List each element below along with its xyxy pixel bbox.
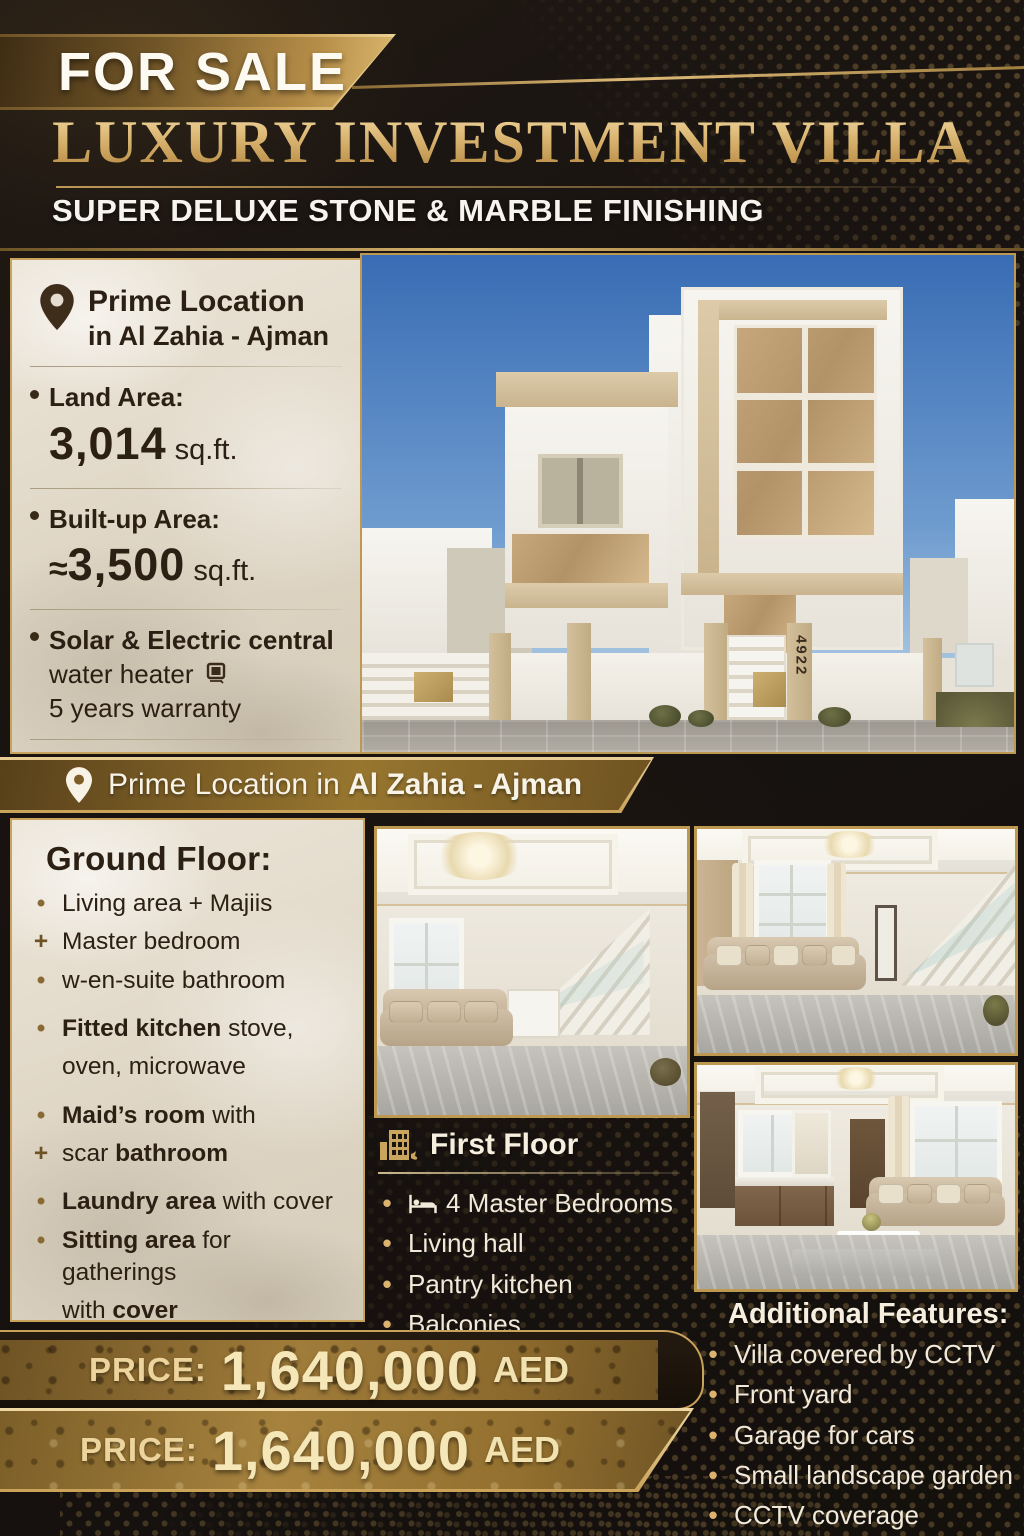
- bullet-marker: •: [32, 965, 50, 997]
- land-area-item: Land Area: 3,014 sq.ft.: [30, 381, 342, 473]
- price-currency: AED: [493, 1349, 569, 1391]
- ground-floor-heading: Ground Floor:: [46, 840, 347, 878]
- location-banner: Prime Location in Al Zahia - Ajman: [0, 757, 654, 813]
- built-up-area-item: Built-up Area: ≈3,500 sq.ft.: [30, 503, 342, 595]
- page-subtitle: SUPER DELUXE STONE & MARBLE FINISHING: [52, 193, 764, 229]
- chandelier: [433, 832, 526, 881]
- list-text: Front yard: [734, 1377, 853, 1411]
- list-text: Maid’s room with: [62, 1100, 256, 1132]
- for-sale-banner: FOR SALE: [0, 34, 396, 110]
- list-text: CCTV coverage: [734, 1498, 919, 1532]
- list-text: Small landscape garden: [734, 1458, 1013, 1492]
- divider: [30, 739, 342, 740]
- for-sale-banner-inner: FOR SALE: [0, 37, 393, 107]
- plus-marker: +: [32, 926, 50, 958]
- page-title: LUXURY INVESTMENT VILLA: [0, 108, 1024, 177]
- location-line2: in Al Zahia - Ajman: [88, 320, 329, 352]
- list-text: Pantry kitchen: [408, 1267, 573, 1301]
- driveway: [362, 720, 1014, 752]
- list-text: Sitting area for gatherings: [62, 1225, 347, 1290]
- list-item: •Small landscape garden: [704, 1458, 1020, 1492]
- standing-mirror: [875, 905, 897, 981]
- bullet-marker: •: [32, 1100, 50, 1132]
- bullet-marker: [30, 632, 39, 641]
- land-area-label: Land Area:: [49, 381, 184, 415]
- heater-line3: 5 years warranty: [49, 692, 342, 726]
- kitchen-counter: [735, 1177, 834, 1186]
- list-text: oven, microwave: [62, 1051, 246, 1083]
- list-item: •4 Master Bedrooms: [378, 1186, 680, 1220]
- approx-sign: ≈: [49, 550, 68, 588]
- understair-cabinet: [507, 989, 560, 1038]
- divider: [378, 1172, 680, 1174]
- villa-glass-facade: [734, 325, 877, 539]
- list-item: +Master bedroom: [32, 926, 347, 958]
- ground-floor-list: •Living area + Majiis+Master bedroom•w-e…: [32, 888, 347, 1389]
- location-banner-prefix: Prime Location in: [108, 768, 348, 801]
- list-item: •Sitting area for gatherings: [32, 1225, 347, 1290]
- list-item: •oven, microwave: [32, 1051, 347, 1083]
- real-estate-flyer: FOR SALE LUXURY INVESTMENT VILLA SUPER D…: [0, 0, 1024, 1536]
- list-text: 4 Master Bedrooms: [408, 1186, 673, 1220]
- interior-photo-living-hall: [694, 826, 1018, 1056]
- property-info-panel: Prime Location in Al Zahia - Ajman Land …: [10, 258, 362, 754]
- list-text: Garage for cars: [734, 1418, 915, 1452]
- location-banner-text: Prime Location in Al Zahia - Ajman: [108, 768, 582, 802]
- list-item: •CCTV coverage: [704, 1498, 1020, 1532]
- built-up-unit: sq.ft.: [185, 555, 256, 587]
- additional-features-heading: Additional Features:: [728, 1298, 1008, 1331]
- list-item: •Maid’s room with: [32, 1100, 347, 1132]
- marble-floor: [697, 995, 1015, 1053]
- list-text: Living hall: [408, 1226, 524, 1260]
- built-up-label: Built-up Area:: [49, 503, 220, 537]
- flowers: [862, 1213, 881, 1231]
- kitchen-cabinets: [735, 1186, 834, 1226]
- bullet-marker: •: [378, 1186, 396, 1220]
- list-item: •Front yard: [704, 1377, 1020, 1411]
- list-item: •w-en-suite bathroom: [32, 965, 347, 997]
- list-item: •Pantry kitchen: [378, 1267, 680, 1301]
- list-text: Master bedroom: [62, 926, 240, 958]
- land-area-unit: sq.ft.: [167, 434, 238, 466]
- water-heater-icon: [204, 661, 228, 685]
- for-sale-label: FOR SALE: [58, 41, 347, 103]
- gate-ornament: [753, 672, 786, 707]
- list-item: +scar bathroom: [32, 1138, 347, 1170]
- price-currency: AED: [484, 1429, 560, 1471]
- plant: [983, 995, 1008, 1026]
- bullet-marker: •: [32, 1013, 50, 1045]
- location-banner-bold: Al Zahia - Ajman: [348, 768, 582, 801]
- list-item: •Laundry area with cover: [32, 1186, 347, 1218]
- divider: [30, 366, 342, 367]
- ground-floor-panel: Ground Floor: •Living area + Majiis+Mast…: [10, 818, 365, 1322]
- villa-band: [698, 300, 887, 320]
- content-divider-line: [0, 248, 1024, 251]
- land-area-value: 3,014: [49, 418, 167, 469]
- villa-band: [698, 300, 719, 573]
- price-banner-1: PRICE: 1,640,000 AED: [0, 1330, 704, 1410]
- list-item: •Villa covered by CCTV: [704, 1337, 1020, 1371]
- bullet-marker: •: [704, 1498, 722, 1532]
- bullet-marker: [30, 390, 39, 399]
- first-floor-heading: First Floor: [430, 1128, 578, 1162]
- chandelier: [831, 1067, 882, 1089]
- bullet-marker: •: [704, 1458, 722, 1492]
- list-item: •Living area + Majiis: [32, 888, 347, 920]
- price-label: PRICE:: [89, 1351, 207, 1389]
- house-number: 4922: [792, 635, 809, 676]
- bed-icon: [408, 1193, 438, 1215]
- marble-floor: [377, 1046, 687, 1115]
- bullet-marker: •: [32, 888, 50, 920]
- bullet-marker: •: [704, 1377, 722, 1411]
- bullet-marker: •: [704, 1418, 722, 1452]
- list-item: •Fitted kitchen stove,: [32, 1013, 347, 1045]
- location-line1-rest: Location: [171, 285, 304, 318]
- villa-canopy: [681, 573, 903, 595]
- bullet-marker: •: [32, 1186, 50, 1218]
- divider: [30, 488, 342, 489]
- location-pin-icon: [40, 284, 74, 330]
- prime-location-text: Prime Location in Al Zahia - Ajman: [88, 284, 329, 352]
- list-text: Villa covered by CCTV: [734, 1337, 995, 1371]
- building-icon: [378, 1128, 418, 1162]
- location-line1-bold: Prime: [88, 285, 171, 318]
- built-up-value: 3,500: [68, 539, 186, 590]
- divider: [30, 609, 342, 610]
- price-banner-2: PRICE: 1,640,000 AED: [0, 1408, 694, 1492]
- list-text: Laundry area with cover: [62, 1186, 333, 1218]
- heater-line1: Solar & Electric central: [49, 624, 334, 658]
- title-underline: [56, 186, 956, 188]
- villa-exterior-photo: 4922: [360, 253, 1016, 754]
- shrub: [818, 707, 851, 727]
- gate-ornament: [414, 672, 453, 702]
- price-value: 1,640,000: [212, 1418, 470, 1483]
- interior-photo-living-stairs: [374, 826, 690, 1118]
- cabinet-glass: [792, 1110, 830, 1177]
- list-item: •Garage for cars: [704, 1418, 1020, 1452]
- fence-pillar: [489, 633, 511, 725]
- shrubbery: [936, 692, 1014, 727]
- additional-features-section: Additional Features: •Villa covered by C…: [704, 1298, 1020, 1536]
- rug: [792, 1249, 938, 1276]
- kitchen-tall-cabinet: [700, 1092, 735, 1208]
- list-item: •Living hall: [378, 1226, 680, 1260]
- bullet-marker: •: [378, 1226, 396, 1260]
- villa-balcony-glass: [512, 531, 649, 589]
- location-pin-icon-white: [66, 767, 92, 803]
- list-text: Living area + Majiis: [62, 888, 272, 920]
- list-text: with cover: [62, 1295, 178, 1327]
- price-label: PRICE:: [80, 1431, 198, 1469]
- fence-pillar: [704, 623, 727, 725]
- first-floor-section: First Floor •4 Master Bedrooms•Living ha…: [378, 1128, 680, 1347]
- first-floor-list: •4 Master Bedrooms•Living hall•Pantry ki…: [378, 1186, 680, 1341]
- list-item: •with cover: [32, 1295, 347, 1327]
- additional-features-list: •Villa covered by CCTV•Front yard•Garage…: [704, 1337, 1020, 1533]
- villa-window: [538, 454, 623, 529]
- water-heater-item: Solar & Electric central water heater 5 …: [30, 624, 342, 725]
- interior-photo-kitchen-living: [694, 1062, 1018, 1292]
- fence-pillar: [567, 623, 590, 725]
- bullet-marker: [30, 511, 39, 520]
- plant: [650, 1058, 681, 1087]
- list-text: w-en-suite bathroom: [62, 965, 285, 997]
- bullet-marker: •: [378, 1267, 396, 1301]
- villa-parapet: [496, 372, 679, 407]
- plus-marker: +: [32, 1138, 50, 1170]
- villa-floor-band: [505, 583, 668, 608]
- price-value: 1,640,000: [221, 1338, 479, 1403]
- bullet-marker: •: [32, 1225, 50, 1290]
- utility-box: [955, 643, 994, 688]
- list-text: Fitted kitchen stove,: [62, 1013, 293, 1045]
- shrub: [688, 710, 714, 727]
- heater-line2: water heater: [49, 659, 194, 689]
- bullet-marker: •: [704, 1337, 722, 1371]
- list-text: scar bathroom: [62, 1138, 228, 1170]
